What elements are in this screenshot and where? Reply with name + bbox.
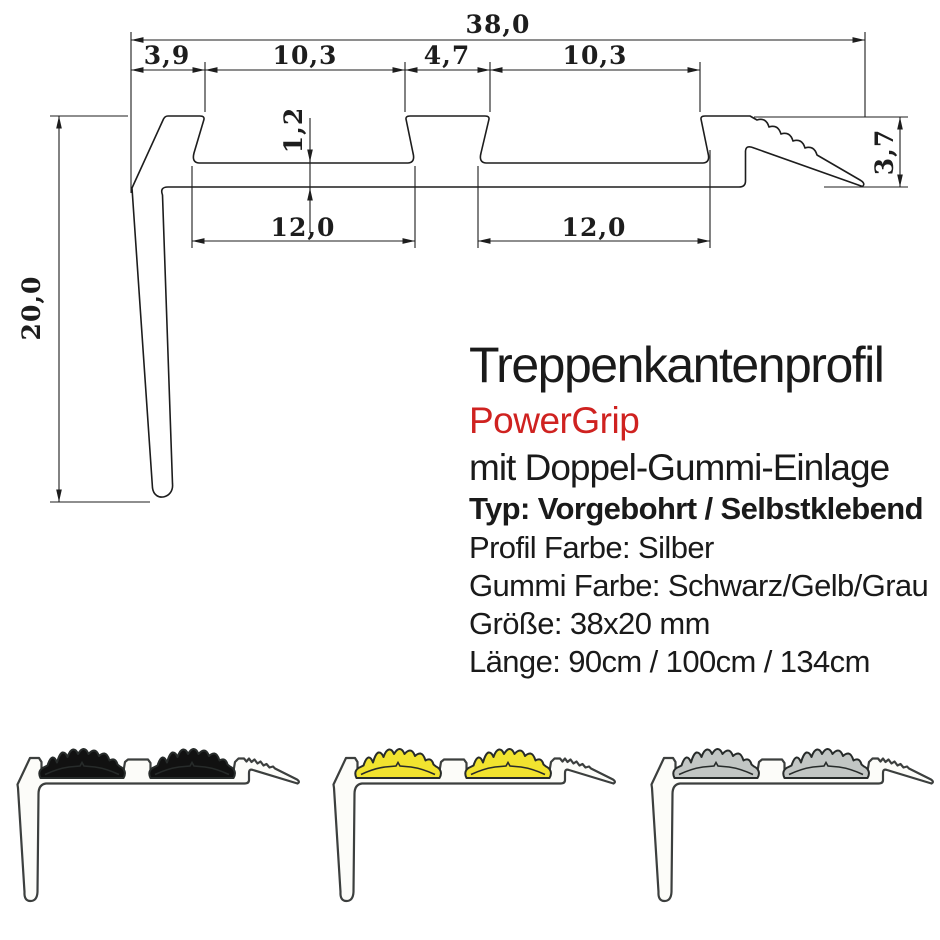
length-line: Länge: 90cm / 100cm / 134cm [469, 643, 934, 681]
dim-label-insert-top-1: 10,3 [273, 41, 338, 70]
dim-label-insert-base-2: 12,0 [562, 213, 627, 242]
subtitle: mit Doppel-Gummi-Einlage [469, 445, 934, 490]
type-line: Typ: Vorgebohrt / Selbstklebend [469, 490, 934, 528]
dim-label-nose-height: 3,7 [870, 129, 899, 176]
variant-photo-schwarz [18, 749, 299, 901]
variant-photo-grau [652, 749, 933, 901]
variant-photos [0, 700, 940, 940]
variant-photo-gelb [334, 749, 615, 901]
dim-label-insert-top-2: 10,3 [563, 41, 628, 70]
dim-label-insert-base-1: 12,0 [271, 213, 336, 242]
dim-label-left-offset: 3,9 [144, 41, 191, 70]
dim-label-center-web: 4,7 [424, 41, 471, 70]
aluminum-profile [18, 758, 299, 901]
product-image: 38,0 3,9 10,3 4,7 10,3 12,0 12,0 1,2 20,… [0, 0, 940, 940]
profile-color-line: Profil Farbe: Silber [469, 529, 934, 567]
dim-label-profile-height: 20,0 [17, 276, 46, 341]
product-info: Treppenkantenprofil PowerGrip mit Doppel… [469, 336, 934, 682]
dim-label-base-thickness: 1,2 [279, 107, 308, 154]
size-line: Größe: 38x20 mm [469, 605, 934, 643]
aluminum-profile [652, 758, 933, 901]
aluminum-profile [334, 758, 615, 901]
brand-name: PowerGrip [469, 397, 934, 445]
rubber-color-line: Gummi Farbe: Schwarz/Gelb/Grau [469, 567, 934, 605]
dim-label-total-width: 38,0 [466, 10, 531, 39]
page-title: Treppenkantenprofil [469, 336, 934, 395]
